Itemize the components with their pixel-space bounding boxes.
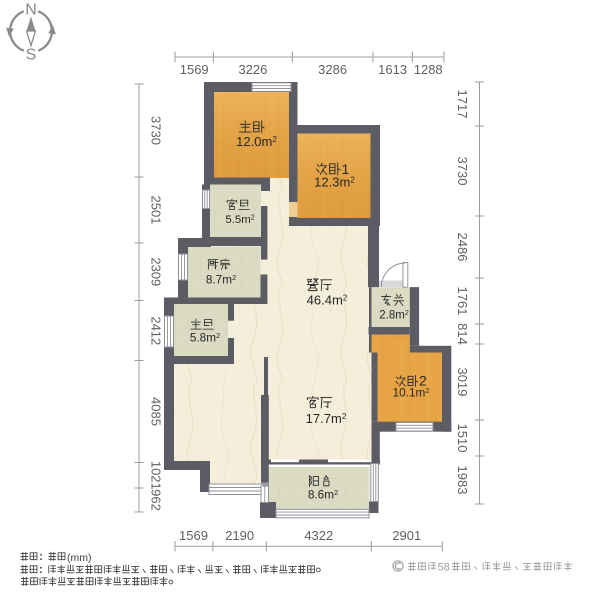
svg-text:1021: 1021 (149, 461, 164, 490)
svg-text:2901: 2901 (392, 528, 421, 543)
svg-text:5.8m2: 5.8m2 (190, 331, 220, 345)
svg-text:814: 814 (455, 323, 470, 345)
svg-text:8.7m2: 8.7m2 (206, 273, 236, 287)
svg-text:2412: 2412 (149, 316, 164, 345)
svg-text:5.5m2: 5.5m2 (225, 214, 254, 227)
svg-text:962: 962 (149, 489, 164, 511)
svg-text:2309: 2309 (149, 257, 164, 286)
svg-text:1288: 1288 (414, 62, 443, 77)
svg-text:S: S (26, 47, 37, 64)
svg-text:4085: 4085 (149, 397, 164, 426)
svg-text:1613: 1613 (378, 62, 407, 77)
svg-text:10.1m2: 10.1m2 (393, 386, 430, 400)
svg-text:1510: 1510 (455, 424, 470, 453)
svg-text:3286: 3286 (318, 62, 347, 77)
svg-text:2190: 2190 (225, 528, 254, 543)
svg-text:1569: 1569 (179, 528, 208, 543)
svg-text:3730: 3730 (455, 157, 470, 186)
svg-text:4322: 4322 (304, 528, 333, 543)
svg-text:1761: 1761 (455, 287, 470, 316)
svg-text:1569: 1569 (180, 62, 209, 77)
svg-text:58: 58 (438, 562, 450, 574)
svg-text:2501: 2501 (149, 196, 164, 225)
svg-text:(mm): (mm) (67, 552, 92, 564)
svg-text:12.0m2: 12.0m2 (236, 134, 277, 149)
svg-text:12.3m2: 12.3m2 (314, 175, 355, 190)
svg-text:2486: 2486 (455, 233, 470, 262)
svg-text:3730: 3730 (149, 116, 164, 145)
svg-text:N: N (25, 2, 37, 19)
svg-text:17.7m2: 17.7m2 (306, 411, 347, 426)
svg-text:2.8m2: 2.8m2 (379, 309, 409, 322)
svg-text:1717: 1717 (455, 90, 470, 119)
svg-text:3226: 3226 (238, 62, 267, 77)
svg-text:1983: 1983 (455, 466, 470, 495)
svg-text:8.6m2: 8.6m2 (308, 488, 338, 502)
svg-text:3019: 3019 (455, 368, 470, 397)
svg-text:46.4m2: 46.4m2 (307, 293, 348, 308)
